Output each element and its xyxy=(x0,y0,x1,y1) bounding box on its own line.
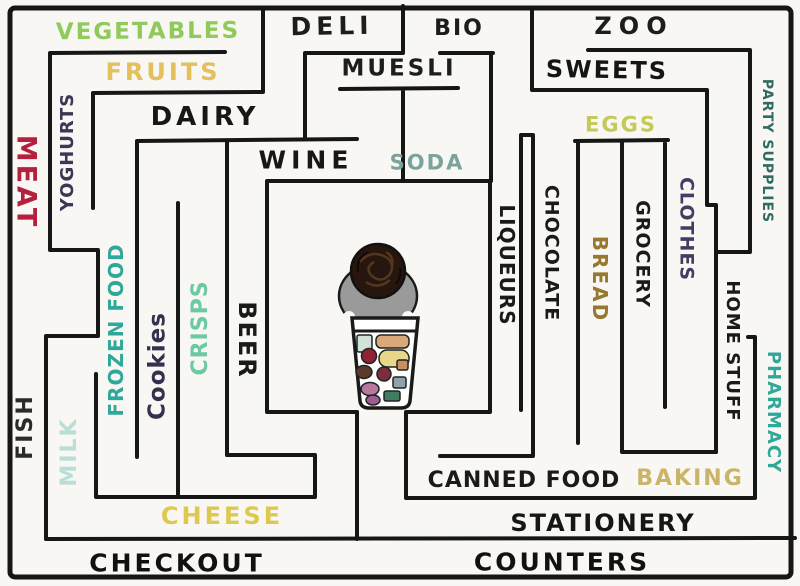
aisle-label-yoghurts: YOGHURTS xyxy=(59,93,77,211)
aisle-label-zoo: ZOO xyxy=(594,14,673,38)
aisle-label-beer: BEER xyxy=(235,301,259,379)
aisle-label-checkout: CHECKOUT xyxy=(89,551,265,576)
aisle-label-cookies: Cookies xyxy=(147,312,170,420)
aisle-label-party-supplies: PARTY SUPPLIES xyxy=(760,79,774,223)
aisle-label-meat: MEAT xyxy=(13,135,40,230)
shopper-head xyxy=(351,244,405,298)
aisle-label-milk: MILK xyxy=(59,417,81,486)
aisle-label-eggs: EGGS xyxy=(585,115,657,136)
aisle-label-deli: DELI xyxy=(290,13,373,39)
aisle-label-soda: SODA xyxy=(390,153,465,174)
aisle-label-bio: BIO xyxy=(434,18,484,40)
aisle-label-chocolate: CHOCOLATE xyxy=(542,185,561,321)
aisle-label-wine: WINE xyxy=(259,148,354,173)
aisle-label-grocery: GROCERY xyxy=(633,200,652,308)
aisle-label-clothes: CLOTHES xyxy=(677,177,696,281)
aisle-label-canned-food: CANNED FOOD xyxy=(428,470,621,492)
aisle-label-crisps: CRISPS xyxy=(190,280,212,375)
aisle-label-pharmacy: PHARMACY xyxy=(764,351,782,473)
aisle-label-stationery: STATIONERY xyxy=(510,511,695,535)
aisle-label-fish: FISH xyxy=(15,394,37,459)
aisle-label-frozen-food: FROZEN FOOD xyxy=(106,243,126,416)
aisle-label-fruits: FRUITS xyxy=(106,60,221,84)
aisle-label-dairy: DAIRY xyxy=(151,104,260,130)
aisle-label-cheese: CHEESE xyxy=(161,504,283,528)
aisle-label-sweets: SWEETS xyxy=(546,57,669,83)
aisle-label-baking: BAKING xyxy=(636,468,744,490)
aisle-label-vegetables: VEGETABLES xyxy=(56,20,240,45)
aisle-label-liqueurs: LIQUEURS xyxy=(497,204,517,325)
aisle-label-home-stuff: HOME STUFF xyxy=(723,280,741,421)
supermarket-maze-map: VEGETABLES FRUITS DELI BIO ZOO MUESLI SW… xyxy=(0,0,800,586)
aisle-label-muesli: MUESLI xyxy=(341,58,456,81)
aisle-label-bread: BREAD xyxy=(590,236,610,322)
aisle-label-counters: COUNTERS xyxy=(474,550,650,575)
